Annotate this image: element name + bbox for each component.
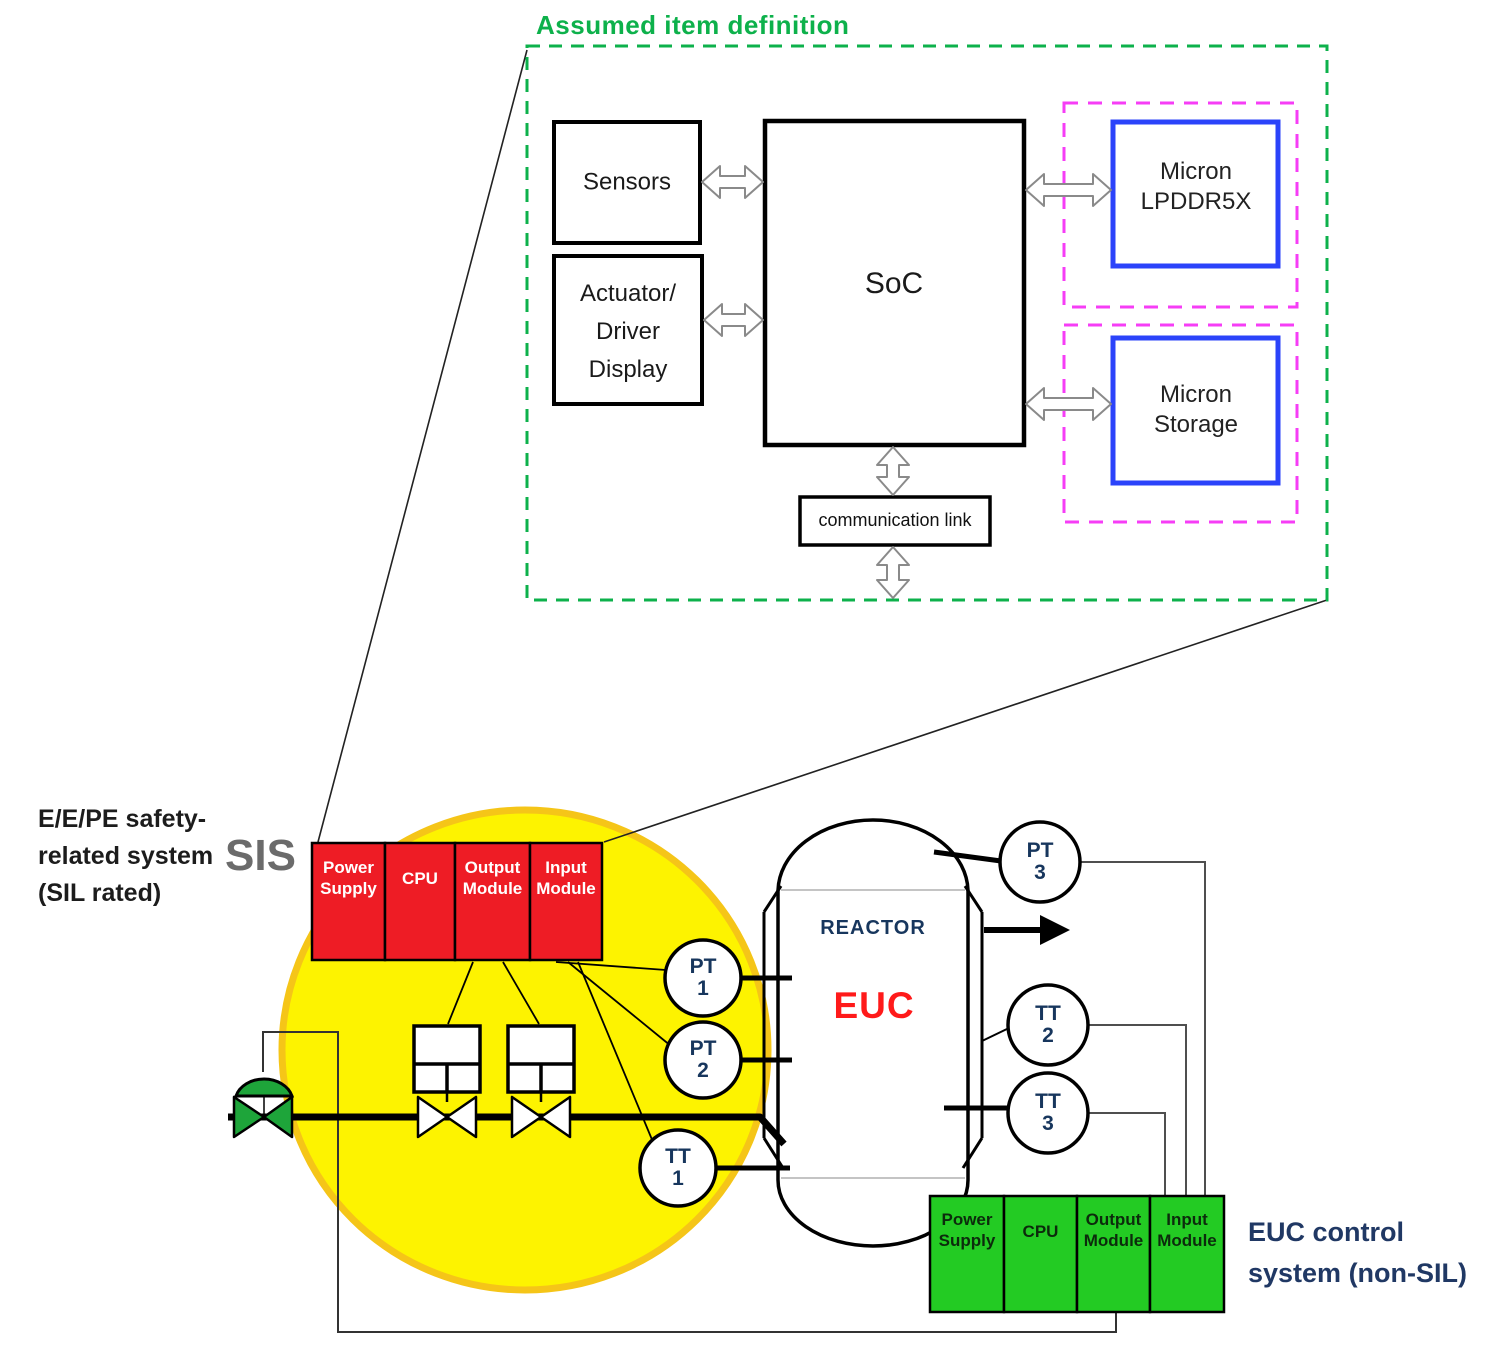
euc-control-caption: EUC control system (non-SIL)	[1248, 1212, 1467, 1294]
pt1-label: PT 1	[690, 956, 717, 1000]
pt1-num: 1	[690, 978, 717, 1000]
lpddr5x-line2: LPDDR5X	[1141, 187, 1252, 217]
euc-module-output: Output Module	[1077, 1209, 1150, 1251]
sis-module-input: Input Module	[530, 857, 602, 899]
tt1-label: TT 1	[665, 1146, 691, 1190]
diagram-artwork	[0, 0, 1500, 1364]
arrow-commlink-external-icon	[877, 547, 909, 598]
actuator-line2: Driver	[580, 313, 676, 351]
euc-module-cpu: CPU	[1004, 1221, 1077, 1242]
pt1-tag: PT	[690, 956, 717, 978]
storage-label: Micron Storage	[1154, 380, 1238, 440]
tt1-tag: TT	[665, 1146, 691, 1168]
comm-link-label: communication link	[818, 510, 971, 532]
storage-line1: Micron	[1154, 380, 1238, 410]
control-valve-icon	[234, 1079, 292, 1137]
assumed-item-title: Assumed item definition	[536, 10, 849, 41]
actuator-label: Actuator/ Driver Display	[580, 275, 676, 389]
reactor-vessel	[764, 820, 982, 1246]
arrow-actuator-soc-icon	[704, 304, 763, 336]
arrow-soc-storage-icon	[1026, 388, 1111, 420]
eepe-line1: E/E/PE safety-	[38, 801, 213, 838]
tt1-num: 1	[665, 1168, 691, 1190]
pt3-tag: PT	[1027, 840, 1054, 862]
sis-module-power-supply: Power Supply	[312, 857, 385, 899]
lpddr5x-label: Micron LPDDR5X	[1141, 157, 1252, 217]
actuator-line1: Actuator/	[580, 275, 676, 313]
pt3-num: 3	[1027, 862, 1054, 884]
sis-tag: SIS	[225, 830, 296, 883]
eepe-system-label: E/E/PE safety- related system (SIL rated…	[38, 801, 213, 912]
tt2-tag: TT	[1035, 1003, 1061, 1025]
callout-line-right	[604, 600, 1327, 842]
euc-label: EUC	[833, 984, 914, 1028]
callout-line-left	[318, 50, 527, 842]
reactor-outline	[778, 820, 968, 1246]
pt3-label: PT 3	[1027, 840, 1054, 884]
arrow-soc-lpddr5x-icon	[1026, 174, 1111, 206]
sis-module-cpu: CPU	[385, 868, 455, 889]
arrow-soc-commlink-icon	[877, 447, 909, 495]
soc-label: SoC	[865, 266, 923, 302]
sis-module-output: Output Module	[455, 857, 530, 899]
tt3-tag: TT	[1035, 1091, 1061, 1113]
tt2-num: 2	[1035, 1025, 1061, 1047]
euc-module-input: Input Module	[1150, 1209, 1224, 1251]
euc-control-line1: EUC control	[1248, 1212, 1467, 1253]
tt3-label: TT 3	[1035, 1091, 1061, 1135]
pt2-num: 2	[690, 1060, 717, 1082]
actuator-line3: Display	[580, 351, 676, 389]
diagram-canvas: Assumed item definition Sensors Actuator…	[0, 0, 1500, 1364]
reactor-label: REACTOR	[820, 916, 926, 940]
pt2-label: PT 2	[690, 1038, 717, 1082]
tt3-num: 3	[1035, 1113, 1061, 1135]
euc-instrument-loops	[1080, 862, 1205, 1196]
arrow-sensors-soc-icon	[702, 166, 763, 198]
storage-line2: Storage	[1154, 410, 1238, 440]
tt2-label: TT 2	[1035, 1003, 1061, 1047]
euc-module-power-supply: Power Supply	[930, 1209, 1004, 1251]
lpddr5x-line1: Micron	[1141, 157, 1252, 187]
eepe-line2: related system	[38, 838, 213, 875]
euc-control-line2: system (non-SIL)	[1248, 1253, 1467, 1294]
flow-arrow-icon	[984, 915, 1070, 945]
pt2-tag: PT	[690, 1038, 717, 1060]
eepe-line3: (SIL rated)	[38, 875, 213, 912]
sensors-label: Sensors	[583, 169, 671, 198]
